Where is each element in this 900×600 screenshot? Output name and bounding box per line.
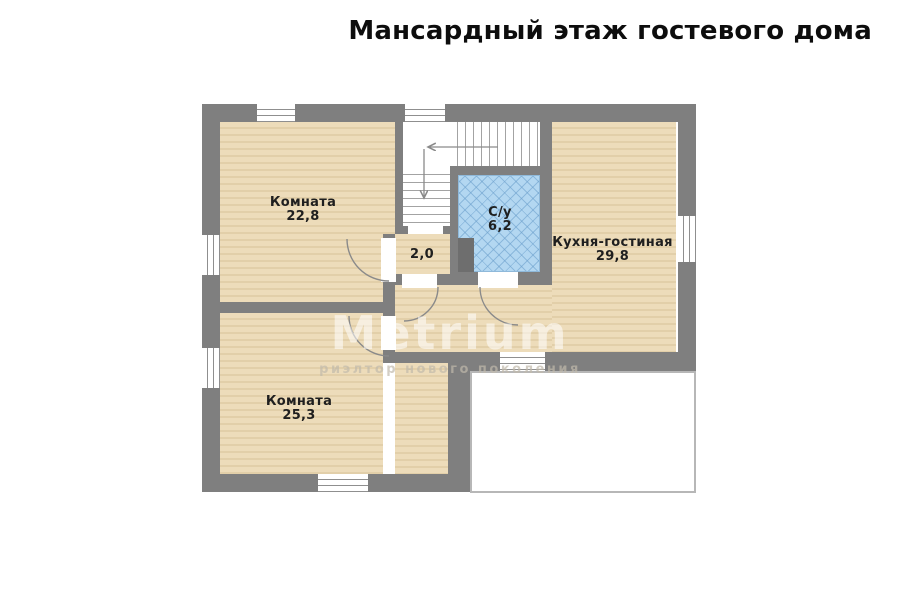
wall-bath-left xyxy=(450,166,458,285)
room-area: 2,0 xyxy=(393,248,451,262)
room-name: Комната xyxy=(214,395,384,409)
window-top-1 xyxy=(257,104,295,122)
door-gap-hall-corridor xyxy=(402,274,437,288)
floor-plan-page: Мансардный этаж гостевого дома xyxy=(0,0,900,600)
room-name: Кухня-гостиная xyxy=(540,236,685,250)
window-top-2 xyxy=(405,104,445,122)
room-name: С/у xyxy=(458,206,542,220)
stair-treads-upper-run xyxy=(450,122,540,167)
wall-room1-stairs xyxy=(395,122,403,234)
room-floor-bottom-left-ext xyxy=(395,363,448,474)
label-bathroom: С/у 6,2 xyxy=(458,206,542,234)
label-hall: 2,0 xyxy=(393,248,451,262)
label-kitchen-living: Кухня-гостиная 29,8 xyxy=(540,236,685,264)
room-area: 6,2 xyxy=(458,220,542,234)
vent-shaft xyxy=(458,238,474,272)
room-area: 22,8 xyxy=(218,210,388,224)
door-gap-bathroom xyxy=(478,272,518,288)
terrace-outline xyxy=(470,371,696,493)
wall-bath-top xyxy=(450,166,552,175)
page-title: Мансардный этаж гостевого дома xyxy=(348,16,872,46)
window-left-1 xyxy=(202,235,220,275)
stair-treads-lower-run xyxy=(403,167,450,234)
watermark-tagline: риэлтор нового поколения xyxy=(295,362,605,377)
room-area: 29,8 xyxy=(540,250,685,264)
label-room-top-left: Комната 22,8 xyxy=(218,196,388,224)
room-name: Комната xyxy=(218,196,388,210)
room-area: 25,3 xyxy=(214,409,384,423)
passage-hall-stairs xyxy=(408,226,443,234)
window-bottom-left xyxy=(318,474,368,492)
watermark-brand: Metrium xyxy=(300,306,600,360)
window-left-2 xyxy=(202,348,220,388)
label-room-bottom-left: Комната 25,3 xyxy=(214,395,384,423)
wall-outer-left xyxy=(202,104,220,492)
